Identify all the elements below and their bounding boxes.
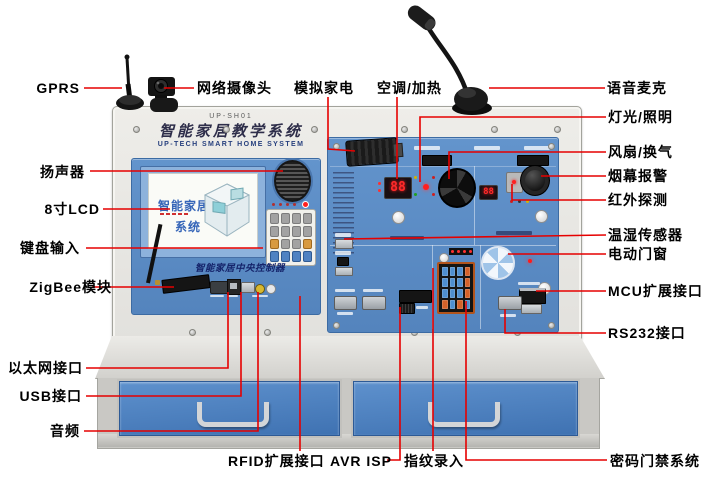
led — [279, 203, 282, 206]
screw — [333, 322, 340, 329]
device-title-cn: 智能家居教学系统 — [141, 120, 321, 141]
toggle-module — [337, 257, 349, 266]
rs232-connector — [498, 296, 522, 310]
led — [518, 200, 521, 203]
module-caption — [335, 251, 351, 255]
zigbee-module — [161, 274, 210, 294]
label-smoke-alarm: 烟幕报警 — [608, 167, 668, 185]
ventilation-fan — [438, 168, 476, 208]
power-led — [303, 202, 308, 207]
keypad-key — [303, 226, 312, 237]
keypad-key — [450, 300, 456, 309]
keypad-key — [442, 289, 448, 298]
left-drawer-handle — [197, 402, 269, 427]
led — [286, 203, 289, 206]
screw — [189, 329, 196, 336]
screw — [554, 126, 561, 133]
port-caption — [228, 295, 238, 297]
led — [510, 200, 513, 203]
door-led-strip — [449, 248, 473, 255]
port-caption — [363, 289, 383, 292]
keypad-key — [450, 267, 456, 276]
lcd-text-2: 系统 — [175, 218, 201, 235]
label-electric-window: 电动门窗 — [608, 245, 668, 263]
label-network-camera: 网络摄像头 — [197, 79, 272, 97]
screw — [548, 322, 555, 329]
keypad-key — [303, 239, 312, 250]
cabinet-top — [95, 336, 605, 379]
keypad-key — [442, 300, 448, 309]
keypad-key — [465, 289, 471, 298]
keypad-key — [450, 278, 456, 287]
label-avr-isp: AVR ISP — [330, 452, 392, 470]
lcd-red-subtext — [160, 213, 190, 215]
speaker-grille — [274, 160, 311, 202]
divider — [330, 166, 556, 167]
keypad-key — [450, 289, 456, 298]
keypad-key — [281, 213, 290, 224]
keypad-key — [292, 251, 301, 262]
usb-module — [335, 267, 353, 276]
label-temp-humidity: 温湿传感器 — [608, 226, 683, 244]
ac-display: 88 — [384, 177, 412, 199]
usb-module — [521, 304, 542, 314]
port-caption — [518, 282, 540, 285]
keypad-key — [303, 213, 312, 224]
lighting-led-cluster — [412, 174, 438, 200]
label-voice-mic: 语音麦克 — [607, 79, 667, 97]
port-caption — [500, 314, 516, 317]
label-lcd-8inch: 8寸LCD — [20, 200, 100, 218]
keypad-key — [457, 278, 463, 287]
audio-jack-1 — [255, 284, 265, 294]
screw — [264, 329, 271, 336]
label-zigbee-module: ZigBee模块 — [12, 278, 112, 296]
label-ethernet-port: 以太网接口 — [8, 359, 82, 377]
keypad-key — [465, 278, 471, 287]
annotated-trainer-photo: UP-SH01 智能家居教学系统 UP-TECH SMART HOME SYST… — [0, 0, 703, 478]
led — [526, 200, 529, 203]
section-caption — [496, 231, 532, 235]
label-ac-heating: 空调/加热 — [377, 79, 442, 97]
label-gprs: GPRS — [10, 79, 80, 97]
section-caption — [524, 146, 550, 150]
device-title-en: UP-TECH SMART HOME SYSTEM — [141, 141, 321, 148]
led — [528, 259, 532, 263]
label-password-door: 密码门禁系统 — [610, 452, 700, 470]
avr-isp-header — [399, 303, 415, 314]
window-fan — [481, 246, 515, 280]
buzzer-button — [392, 211, 405, 224]
label-rfid-expansion: RFID扩展接口 — [228, 452, 325, 470]
keypad-key — [270, 226, 279, 237]
label-speaker: 扬声器 — [15, 163, 85, 181]
sma-connector — [155, 280, 160, 285]
door-lcd-module — [399, 290, 432, 303]
port-caption — [252, 295, 268, 297]
keypad-key — [303, 251, 312, 262]
screw — [333, 143, 340, 150]
right-drawer-handle — [428, 402, 500, 427]
modules-panel: 88 88 — [327, 137, 559, 333]
led — [378, 189, 381, 192]
serial-port — [334, 296, 357, 310]
screw — [133, 126, 140, 133]
keypad-key — [292, 239, 301, 250]
screw — [491, 126, 498, 133]
screw — [223, 126, 230, 133]
controller-panel: 智能家居 系统 — [131, 158, 321, 315]
ethernet-jack — [227, 279, 241, 295]
env-display: 88 — [479, 185, 498, 200]
screw — [311, 126, 318, 133]
label-mcu-expansion: MCU扩展接口 — [608, 282, 703, 300]
keypad-key — [457, 267, 463, 276]
cabinet-body — [97, 378, 600, 449]
keypad-key — [270, 239, 279, 250]
microphone — [405, 2, 492, 115]
label-fan-ventilation: 风扇/换气 — [608, 143, 673, 161]
keypad-key — [292, 213, 301, 224]
simulated-appliance-module — [345, 137, 399, 167]
screw — [548, 143, 555, 150]
port-caption — [335, 289, 355, 292]
keypad-key — [442, 267, 448, 276]
label-rs232: RS232接口 — [608, 324, 686, 342]
keypad-key — [442, 278, 448, 287]
keypad-key — [465, 267, 471, 276]
keypad-key — [270, 213, 279, 224]
label-audio: 音频 — [30, 422, 80, 440]
house-3d-image — [201, 180, 253, 242]
label-simulated-appliance: 模拟家电 — [294, 79, 354, 97]
device-model: UP-SH01 — [141, 113, 321, 120]
usb-jack — [241, 282, 255, 293]
console-face: UP-SH01 智能家居教学系统 UP-TECH SMART HOME SYST… — [112, 106, 582, 340]
sensor-caption — [335, 233, 351, 237]
section-caption — [390, 236, 424, 240]
keypad-key — [457, 300, 463, 309]
port-caption — [337, 312, 353, 315]
divider — [330, 245, 556, 246]
keypad-key — [457, 289, 463, 298]
keypad-key — [281, 239, 290, 250]
label-keypad-input: 键盘输入 — [10, 239, 80, 257]
controller-caption: 智能家居中央控制器 — [190, 260, 290, 274]
led — [293, 203, 296, 206]
label-ir-detection: 红外探测 — [608, 191, 668, 209]
controller-keypad — [266, 209, 316, 266]
keypad-key — [465, 300, 471, 309]
port-caption — [210, 295, 224, 297]
keypad-key — [281, 226, 290, 237]
audio-jack-2 — [266, 284, 276, 294]
divider — [474, 166, 475, 245]
port-caption — [416, 306, 428, 309]
relay-module — [422, 155, 452, 166]
lcd-screen: 智能家居 系统 — [148, 173, 258, 249]
section-caption — [474, 146, 500, 150]
screw — [401, 126, 408, 133]
label-fingerprint: 指纹录入 — [404, 452, 464, 470]
led — [378, 182, 381, 185]
serial-port — [362, 296, 386, 310]
label-lighting: 灯光/照明 — [608, 108, 673, 126]
device-header: UP-SH01 智能家居教学系统 UP-TECH SMART HOME SYST… — [141, 113, 321, 148]
label-usb-port: USB接口 — [12, 387, 82, 405]
mcu-expansion-module — [519, 288, 546, 304]
buzzer-button — [535, 210, 548, 223]
access-keypad — [437, 262, 475, 314]
gprs-antenna — [116, 55, 144, 111]
temp-humidity-sensor — [335, 239, 353, 249]
section-caption — [414, 146, 440, 150]
smoke-detector — [520, 165, 550, 196]
divider — [432, 245, 433, 329]
keypad-key — [292, 226, 301, 237]
led — [272, 203, 275, 206]
